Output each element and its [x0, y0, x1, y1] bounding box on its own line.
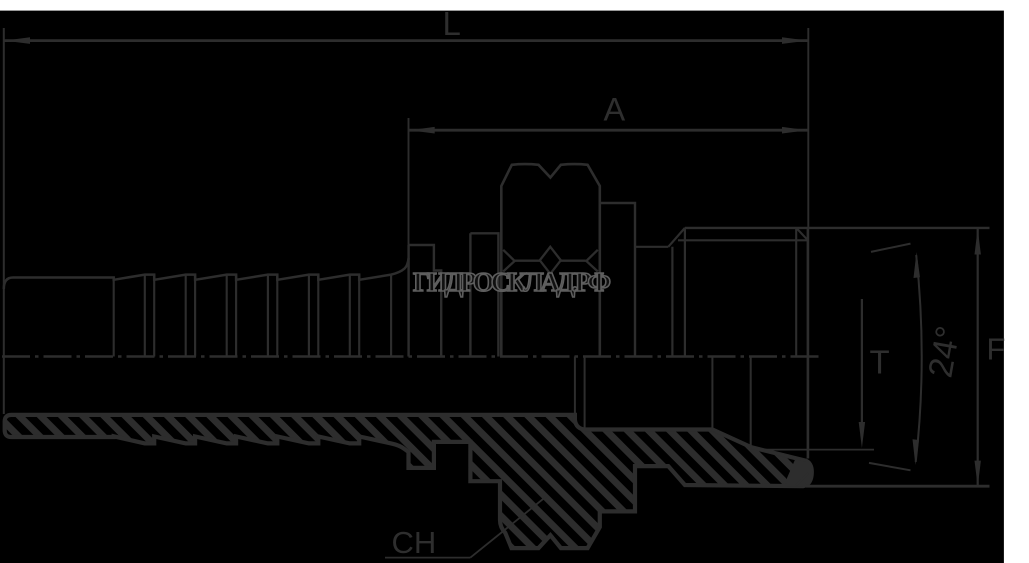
svg-text:CH: CH	[392, 525, 437, 560]
svg-text:T: T	[870, 344, 890, 381]
svg-text:A: A	[604, 92, 626, 128]
svg-text:L: L	[443, 5, 461, 42]
svg-text:ГИДРОСКЛАД.РФ: ГИДРОСКЛАД.РФ	[413, 266, 611, 297]
svg-text:F: F	[987, 332, 1006, 367]
